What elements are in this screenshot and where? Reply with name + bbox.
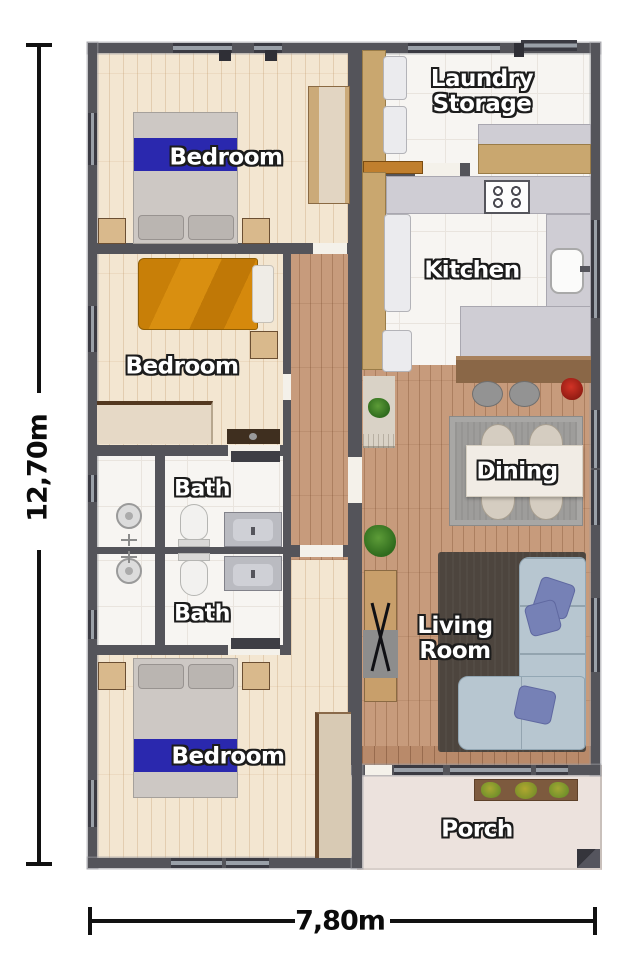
- window-icon: [536, 765, 568, 775]
- room-label-kitchen: Kitchen: [424, 259, 519, 284]
- toilet-icon: [180, 504, 208, 540]
- bar-stool: [472, 381, 503, 407]
- window-icon: [408, 43, 500, 53]
- window-icon: [591, 470, 600, 525]
- dimension-line-horizontal: [390, 919, 595, 923]
- planter-box: [474, 779, 578, 801]
- window-icon: [591, 410, 600, 468]
- plant-icon: [549, 782, 569, 798]
- shower-valve-icon: [121, 551, 137, 563]
- window-icon: [88, 780, 97, 827]
- pillow: [138, 215, 184, 240]
- room-label-line: Room: [417, 639, 492, 664]
- desk-item: [249, 433, 257, 440]
- dimension-line-vertical: [37, 550, 41, 866]
- plant-icon: [368, 398, 390, 418]
- bar-stool: [509, 381, 540, 407]
- room-label-bedroom-middle: Bedroom: [125, 355, 238, 380]
- room-label-bedroom-bottom: Bedroom: [171, 745, 284, 770]
- window-icon: [88, 113, 97, 165]
- door-opening-bedroom-bottom: [300, 545, 343, 557]
- room-label-line: Laundry: [431, 67, 533, 92]
- door-opening-dining: [348, 457, 362, 503]
- pillow: [252, 265, 274, 323]
- room-label-living-room: Living Room: [417, 614, 492, 664]
- door-opening-bedroom-top: [313, 243, 347, 254]
- dimension-tick: [593, 907, 597, 935]
- wall-center-vertical: [348, 43, 362, 765]
- faucet-icon: [580, 266, 590, 272]
- pillow: [138, 664, 184, 689]
- nightstand: [98, 662, 126, 690]
- plant-icon: [481, 782, 501, 798]
- nightstand: [242, 218, 270, 244]
- window-icon: [88, 306, 97, 352]
- room-label-dining: Dining: [476, 460, 557, 485]
- bed-double-orange: [138, 258, 258, 330]
- floor-hallway: [288, 250, 353, 560]
- room-label-line: Storage: [431, 92, 533, 117]
- wall-shower-lower: [155, 553, 165, 645]
- dimension-label-height: 12,70m: [23, 414, 54, 522]
- vanity-sink: [224, 512, 282, 547]
- kitchen-appliance: [384, 214, 411, 312]
- shutter-icon: [265, 50, 277, 61]
- window-icon: [450, 765, 531, 775]
- window-icon: [591, 220, 600, 318]
- stove-icon: [484, 180, 530, 214]
- laundry-counter-top: [478, 124, 591, 146]
- dryer-icon: [383, 106, 407, 154]
- porch-pillar: [577, 849, 600, 868]
- door-leaf-bath-upper: [231, 451, 280, 462]
- window-icon: [226, 858, 269, 868]
- dimension-label-width: 7,80m: [295, 906, 385, 937]
- closet: [308, 86, 350, 204]
- red-plant-icon: [561, 378, 583, 400]
- wall-shower-upper: [155, 450, 165, 547]
- toilet-icon: [180, 560, 208, 596]
- shutter-icon: [219, 50, 231, 61]
- room-label-bedroom-top: Bedroom: [169, 146, 282, 171]
- floor-plan: Bedroom Bedroom Bath Bath Bedroom Laundr…: [0, 0, 640, 966]
- shower-head-center: [125, 512, 133, 520]
- room-label-line: Living: [417, 614, 492, 639]
- tv-icon: [368, 602, 394, 672]
- room-label-porch: Porch: [441, 818, 513, 843]
- sink-icon: [550, 248, 584, 294]
- sink-drain: [251, 527, 255, 535]
- window-icon: [88, 475, 97, 502]
- dimension-tick: [26, 43, 52, 47]
- laundry-counter: [478, 144, 591, 174]
- room-label-bath-upper: Bath: [174, 477, 230, 502]
- nightstand: [242, 662, 270, 690]
- door-opening-bedroom-middle: [283, 374, 291, 400]
- shower-head-center: [125, 567, 133, 575]
- window-icon: [394, 765, 443, 775]
- wall-bottom-left: [88, 858, 360, 868]
- window-icon: [88, 610, 97, 639]
- sink-drain: [251, 570, 255, 578]
- dimension-tick: [26, 862, 52, 866]
- shutter-icon: [514, 43, 524, 57]
- plant-icon: [515, 782, 537, 799]
- dimension-line-vertical: [37, 45, 41, 393]
- window-icon: [521, 40, 577, 51]
- window-icon: [171, 858, 222, 868]
- shower-valve-icon: [121, 534, 137, 546]
- plant-icon: [364, 525, 396, 557]
- shower-icon: [116, 503, 142, 529]
- bed-double: [133, 658, 238, 798]
- washer-icon: [383, 56, 407, 100]
- room-label-laundry-storage: Laundry Storage: [431, 67, 533, 117]
- dimension-line-horizontal: [90, 919, 295, 923]
- wall-porch-left: [352, 765, 362, 868]
- room-label-bath-lower: Bath: [174, 602, 230, 627]
- dimension-tick: [88, 907, 92, 935]
- toilet-tank: [178, 539, 210, 547]
- door-leaf-bath-lower: [231, 638, 280, 649]
- fridge-icon: [382, 330, 412, 372]
- window-icon: [591, 598, 600, 672]
- dresser: [97, 401, 213, 444]
- nightstand: [98, 218, 126, 244]
- vanity-sink: [224, 556, 282, 591]
- desk: [227, 429, 280, 444]
- bedside-desk: [250, 331, 278, 359]
- pillow: [188, 215, 234, 240]
- door-opening-porch: [365, 765, 392, 775]
- bed-double: [133, 112, 238, 244]
- wall-bedroom-top-bottom: [88, 243, 348, 254]
- kitchen-peninsula: [460, 306, 591, 358]
- wardrobe: [315, 712, 351, 858]
- pillow: [188, 664, 234, 689]
